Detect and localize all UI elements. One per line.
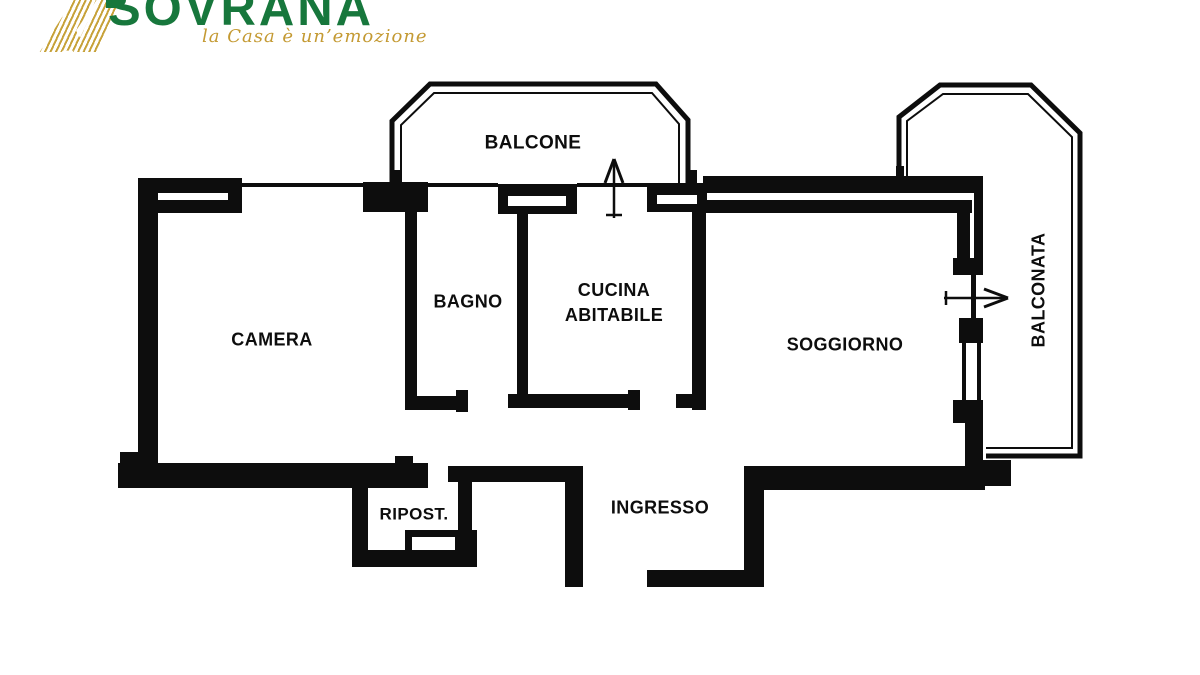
door-arrow-up-icon	[605, 159, 623, 218]
room-label-cucina: CUCINA ABITABILE	[565, 278, 663, 328]
floorplan-drawing	[0, 0, 1200, 675]
room-label-ingresso: INGRESSO	[611, 496, 709, 521]
room-label-balconata: BALCONATA	[1027, 233, 1052, 348]
room-label-camera: CAMERA	[231, 328, 312, 353]
balconata-outline	[899, 85, 1080, 456]
room-label-soggiorno: SOGGIORNO	[787, 333, 904, 358]
room-label-ripost: RIPOST.	[380, 502, 449, 527]
room-label-cucina-line1: CUCINA	[565, 278, 663, 303]
room-label-balcone: BALCONE	[485, 131, 582, 156]
floorplan-page: SOVRANA la Casa è un’emozione	[0, 0, 1200, 675]
walls	[118, 166, 1011, 587]
room-label-bagno: BAGNO	[434, 290, 503, 315]
room-label-cucina-line2: ABITABILE	[565, 303, 663, 328]
